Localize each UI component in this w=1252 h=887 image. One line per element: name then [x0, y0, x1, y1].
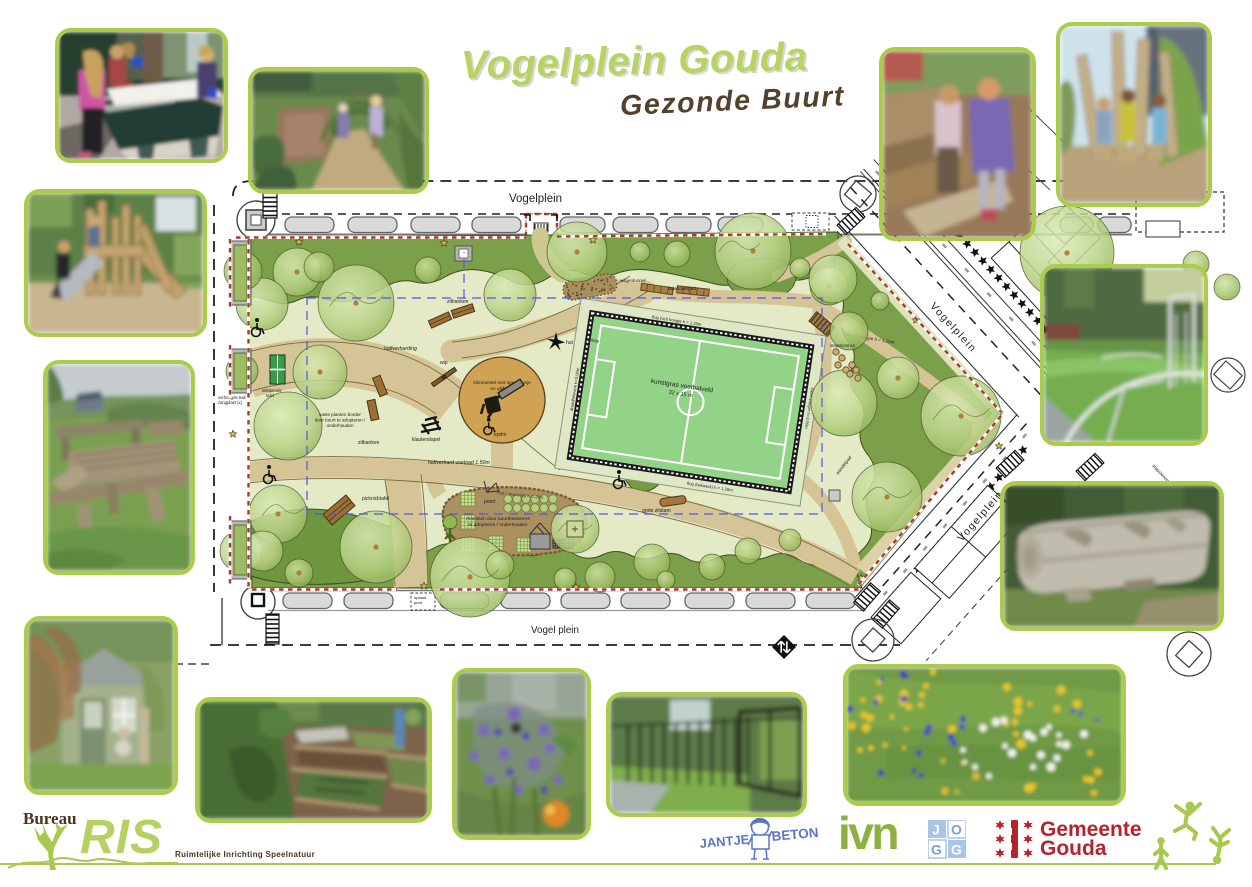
svg-text:wip: wip	[440, 360, 448, 366]
svg-text:J: J	[932, 822, 940, 838]
svg-text:G: G	[951, 842, 962, 858]
svg-text:klauterstapel: klauterstapel	[412, 437, 440, 443]
svg-text:vaste planten border: vaste planten border	[319, 412, 361, 417]
svg-text:epdm: epdm	[494, 432, 507, 438]
svg-text:zitbanken: zitbanken	[358, 440, 380, 446]
svg-text:moestuin door buurtbewoners: moestuin door buurtbewoners	[466, 516, 530, 522]
svg-text:picknicktafel: picknicktafel	[362, 496, 389, 502]
svg-text:O: O	[951, 822, 962, 838]
svg-text:Vogel plein: Vogel plein	[531, 625, 579, 636]
svg-text:poort: poort	[484, 499, 496, 505]
svg-text:BETON: BETON	[771, 825, 818, 844]
svg-text:hut: hut	[566, 340, 574, 346]
svg-text:halfverhard voetpad 1.50m: halfverhard voetpad 1.50m	[428, 460, 490, 466]
svg-text:te adopteren / onderhouden: te adopteren / onderhouden	[468, 522, 528, 528]
svg-text:grote zitstam: grote zitstam	[642, 508, 671, 514]
svg-text:door buurt te adopteren /: door buurt te adopteren /	[315, 418, 366, 423]
svg-text:punt: punt	[414, 600, 423, 605]
svg-text:Vogelplein: Vogelplein	[509, 193, 562, 205]
svg-text:zitbanken: zitbanken	[447, 299, 469, 305]
svg-text:balanceerpad: balanceerpad	[668, 286, 696, 291]
svg-text:halfverharding: halfverharding	[384, 346, 417, 352]
svg-text:JANTJE: JANTJE	[700, 832, 750, 851]
svg-text:stapstammen: stapstammen	[830, 343, 856, 348]
svg-text:wilgentunnel: wilgentunnel	[620, 278, 646, 283]
svg-text:onderhouden: onderhouden	[326, 423, 354, 428]
svg-text:tafel: tafel	[266, 393, 274, 398]
svg-text:G: G	[931, 842, 942, 858]
svg-text:zangplast (x): zangplast (x)	[218, 400, 243, 405]
